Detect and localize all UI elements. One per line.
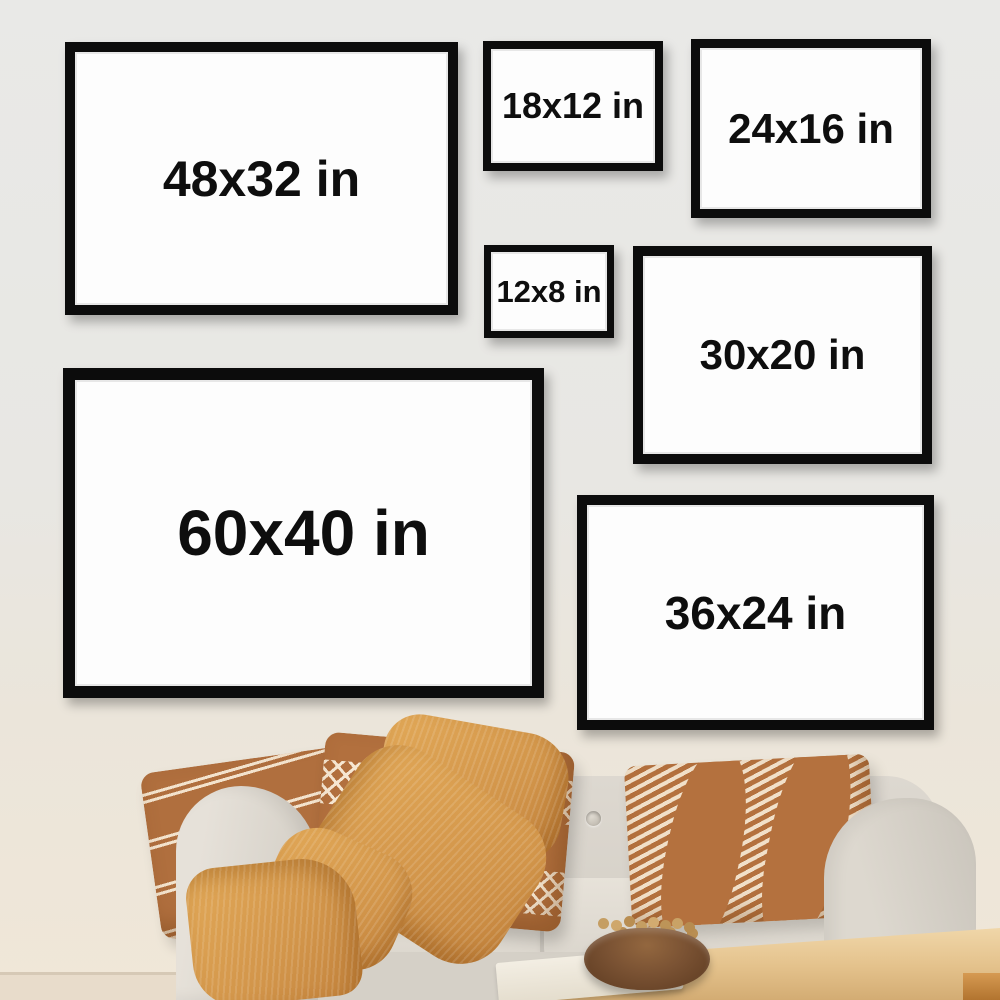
sofa-button-tuft (586, 811, 601, 826)
frame-size-label: 36x24 in (665, 586, 847, 640)
frame-size-label: 18x12 in (502, 85, 644, 127)
frame-size-label: 24x16 in (728, 105, 894, 153)
frame-size-label: 60x40 in (177, 496, 430, 570)
frame-size-label: 30x20 in (700, 331, 866, 379)
bowl-of-nuts (598, 918, 609, 929)
frame-60x40-in: 60x40 in (63, 368, 544, 698)
frame-size-label: 12x8 in (496, 274, 601, 310)
frame-18x12-in: 18x12 in (483, 41, 663, 171)
wooden-stool-corner (963, 973, 1000, 1000)
frame-24x16-in: 24x16 in (691, 39, 931, 218)
frame-12x8-in: 12x8 in (484, 245, 614, 338)
floor-left (0, 972, 190, 1000)
throw-blanket (183, 854, 365, 1000)
frame-size-label: 48x32 in (163, 150, 360, 208)
frame-36x24-in: 36x24 in (577, 495, 934, 730)
frame-48x32-in: 48x32 in (65, 42, 458, 315)
wooden-bowl (584, 928, 710, 990)
size-guide-scene: 48x32 in 18x12 in 24x16 in 12x8 in 30x20… (0, 0, 1000, 1000)
frame-30x20-in: 30x20 in (633, 246, 932, 464)
